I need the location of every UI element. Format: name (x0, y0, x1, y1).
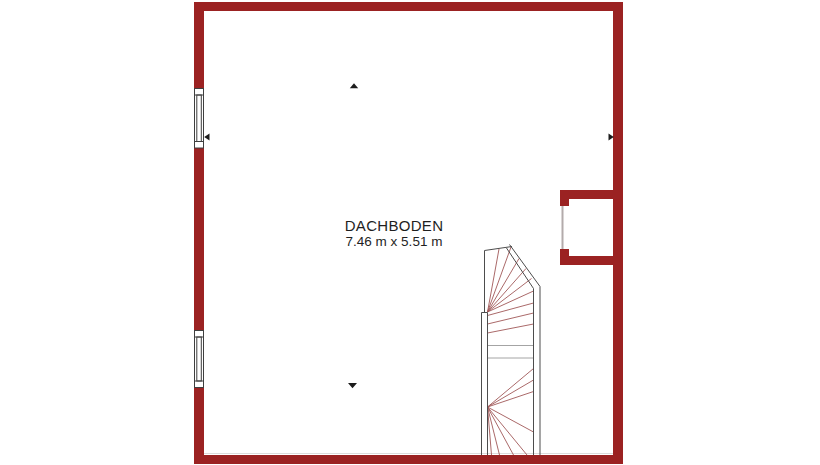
wall-top (194, 2, 623, 11)
window-bottom-left (195, 331, 204, 388)
floor-plan: DACHBODEN 7.46 m x 5.51 m (0, 0, 820, 465)
wall-right (613, 2, 623, 464)
room-dimensions: 7.46 m x 5.51 m (314, 234, 474, 249)
niche-stub-bottom (560, 249, 569, 265)
wall-left-middle (194, 148, 204, 330)
room-label-block: DACHBODEN 7.46 m x 5.51 m (314, 217, 474, 249)
arrow-down-icon (348, 383, 357, 388)
window-top-left (195, 89, 204, 149)
wall-bottom (194, 455, 623, 464)
wall-left-upper (194, 2, 204, 88)
room-name: DACHBODEN (314, 217, 474, 234)
wall-left-lower (194, 388, 204, 455)
wall-niche (560, 190, 613, 265)
arrow-left-icon (204, 134, 209, 141)
staircase-outline (482, 245, 541, 456)
niche-stub-top (560, 190, 569, 206)
window-frame (195, 331, 204, 388)
winder-staircase (482, 245, 541, 456)
arrow-up-icon (350, 83, 358, 88)
window-frame (195, 89, 204, 149)
